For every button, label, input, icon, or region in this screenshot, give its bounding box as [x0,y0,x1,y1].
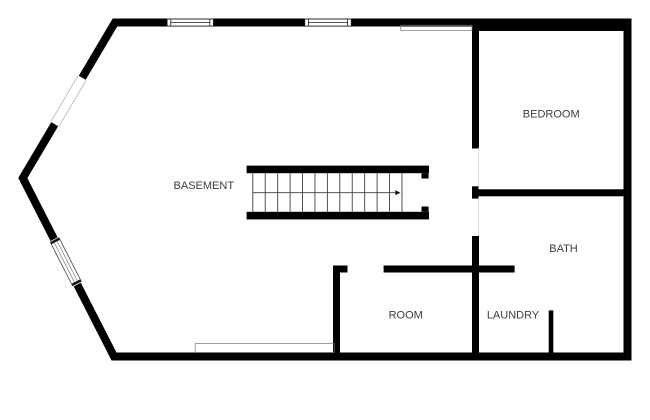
svg-text:BASEMENT: BASEMENT [174,180,235,192]
svg-text:BATH: BATH [549,243,578,255]
svg-text:BEDROOM: BEDROOM [523,109,580,121]
svg-text:ROOM: ROOM [389,310,423,322]
svg-text:LAUNDRY: LAUNDRY [487,310,540,322]
